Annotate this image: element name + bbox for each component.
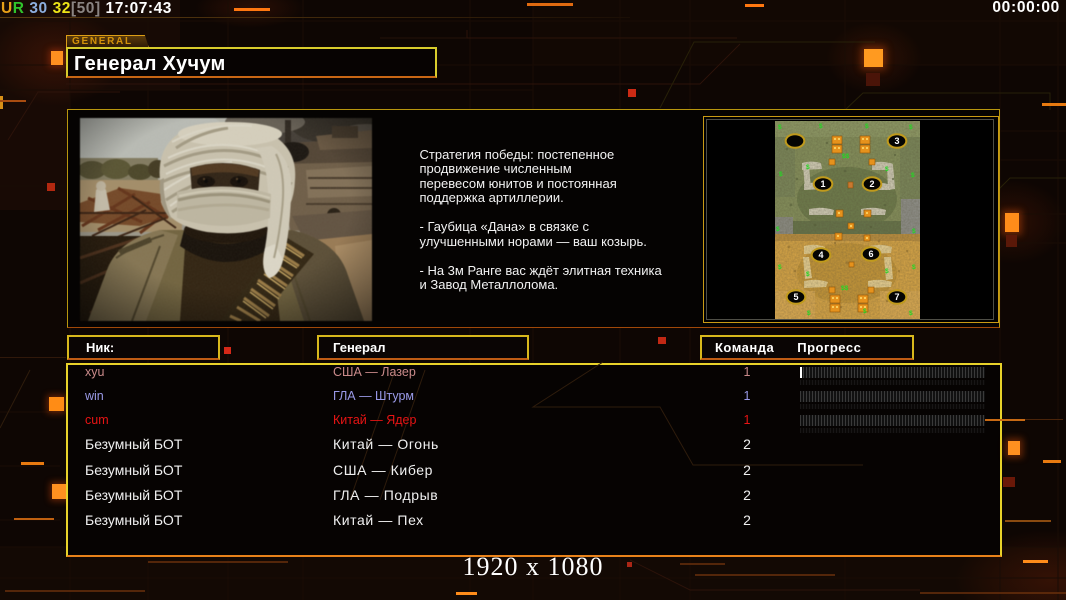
svg-text:$: $ <box>885 166 889 173</box>
svg-text:2: 2 <box>869 179 874 189</box>
svg-text:$: $ <box>806 271 810 278</box>
svg-text:7: 7 <box>894 292 899 302</box>
svg-text:$: $ <box>778 264 782 271</box>
svg-text:$: $ <box>819 123 823 130</box>
svg-text:$: $ <box>885 268 889 275</box>
svg-text:$: $ <box>912 264 916 271</box>
svg-text:$: $ <box>807 310 811 317</box>
svg-text:4: 4 <box>818 250 823 260</box>
svg-text:5: 5 <box>793 292 798 302</box>
svg-text:$$: $$ <box>841 285 849 292</box>
svg-text:$: $ <box>778 124 782 131</box>
svg-text:$: $ <box>912 228 916 235</box>
svg-text:$: $ <box>909 124 913 131</box>
svg-text:$: $ <box>776 226 780 233</box>
svg-text:$: $ <box>863 308 867 315</box>
svg-text:6: 6 <box>868 249 873 259</box>
svg-text:$: $ <box>806 164 810 171</box>
svg-text:$: $ <box>779 171 783 178</box>
svg-text:$: $ <box>909 310 913 317</box>
svg-text:3: 3 <box>894 136 899 146</box>
svg-text:1: 1 <box>820 179 825 189</box>
svg-text:$: $ <box>911 172 915 179</box>
svg-text:$: $ <box>865 123 869 130</box>
svg-text:$$: $$ <box>842 153 850 160</box>
